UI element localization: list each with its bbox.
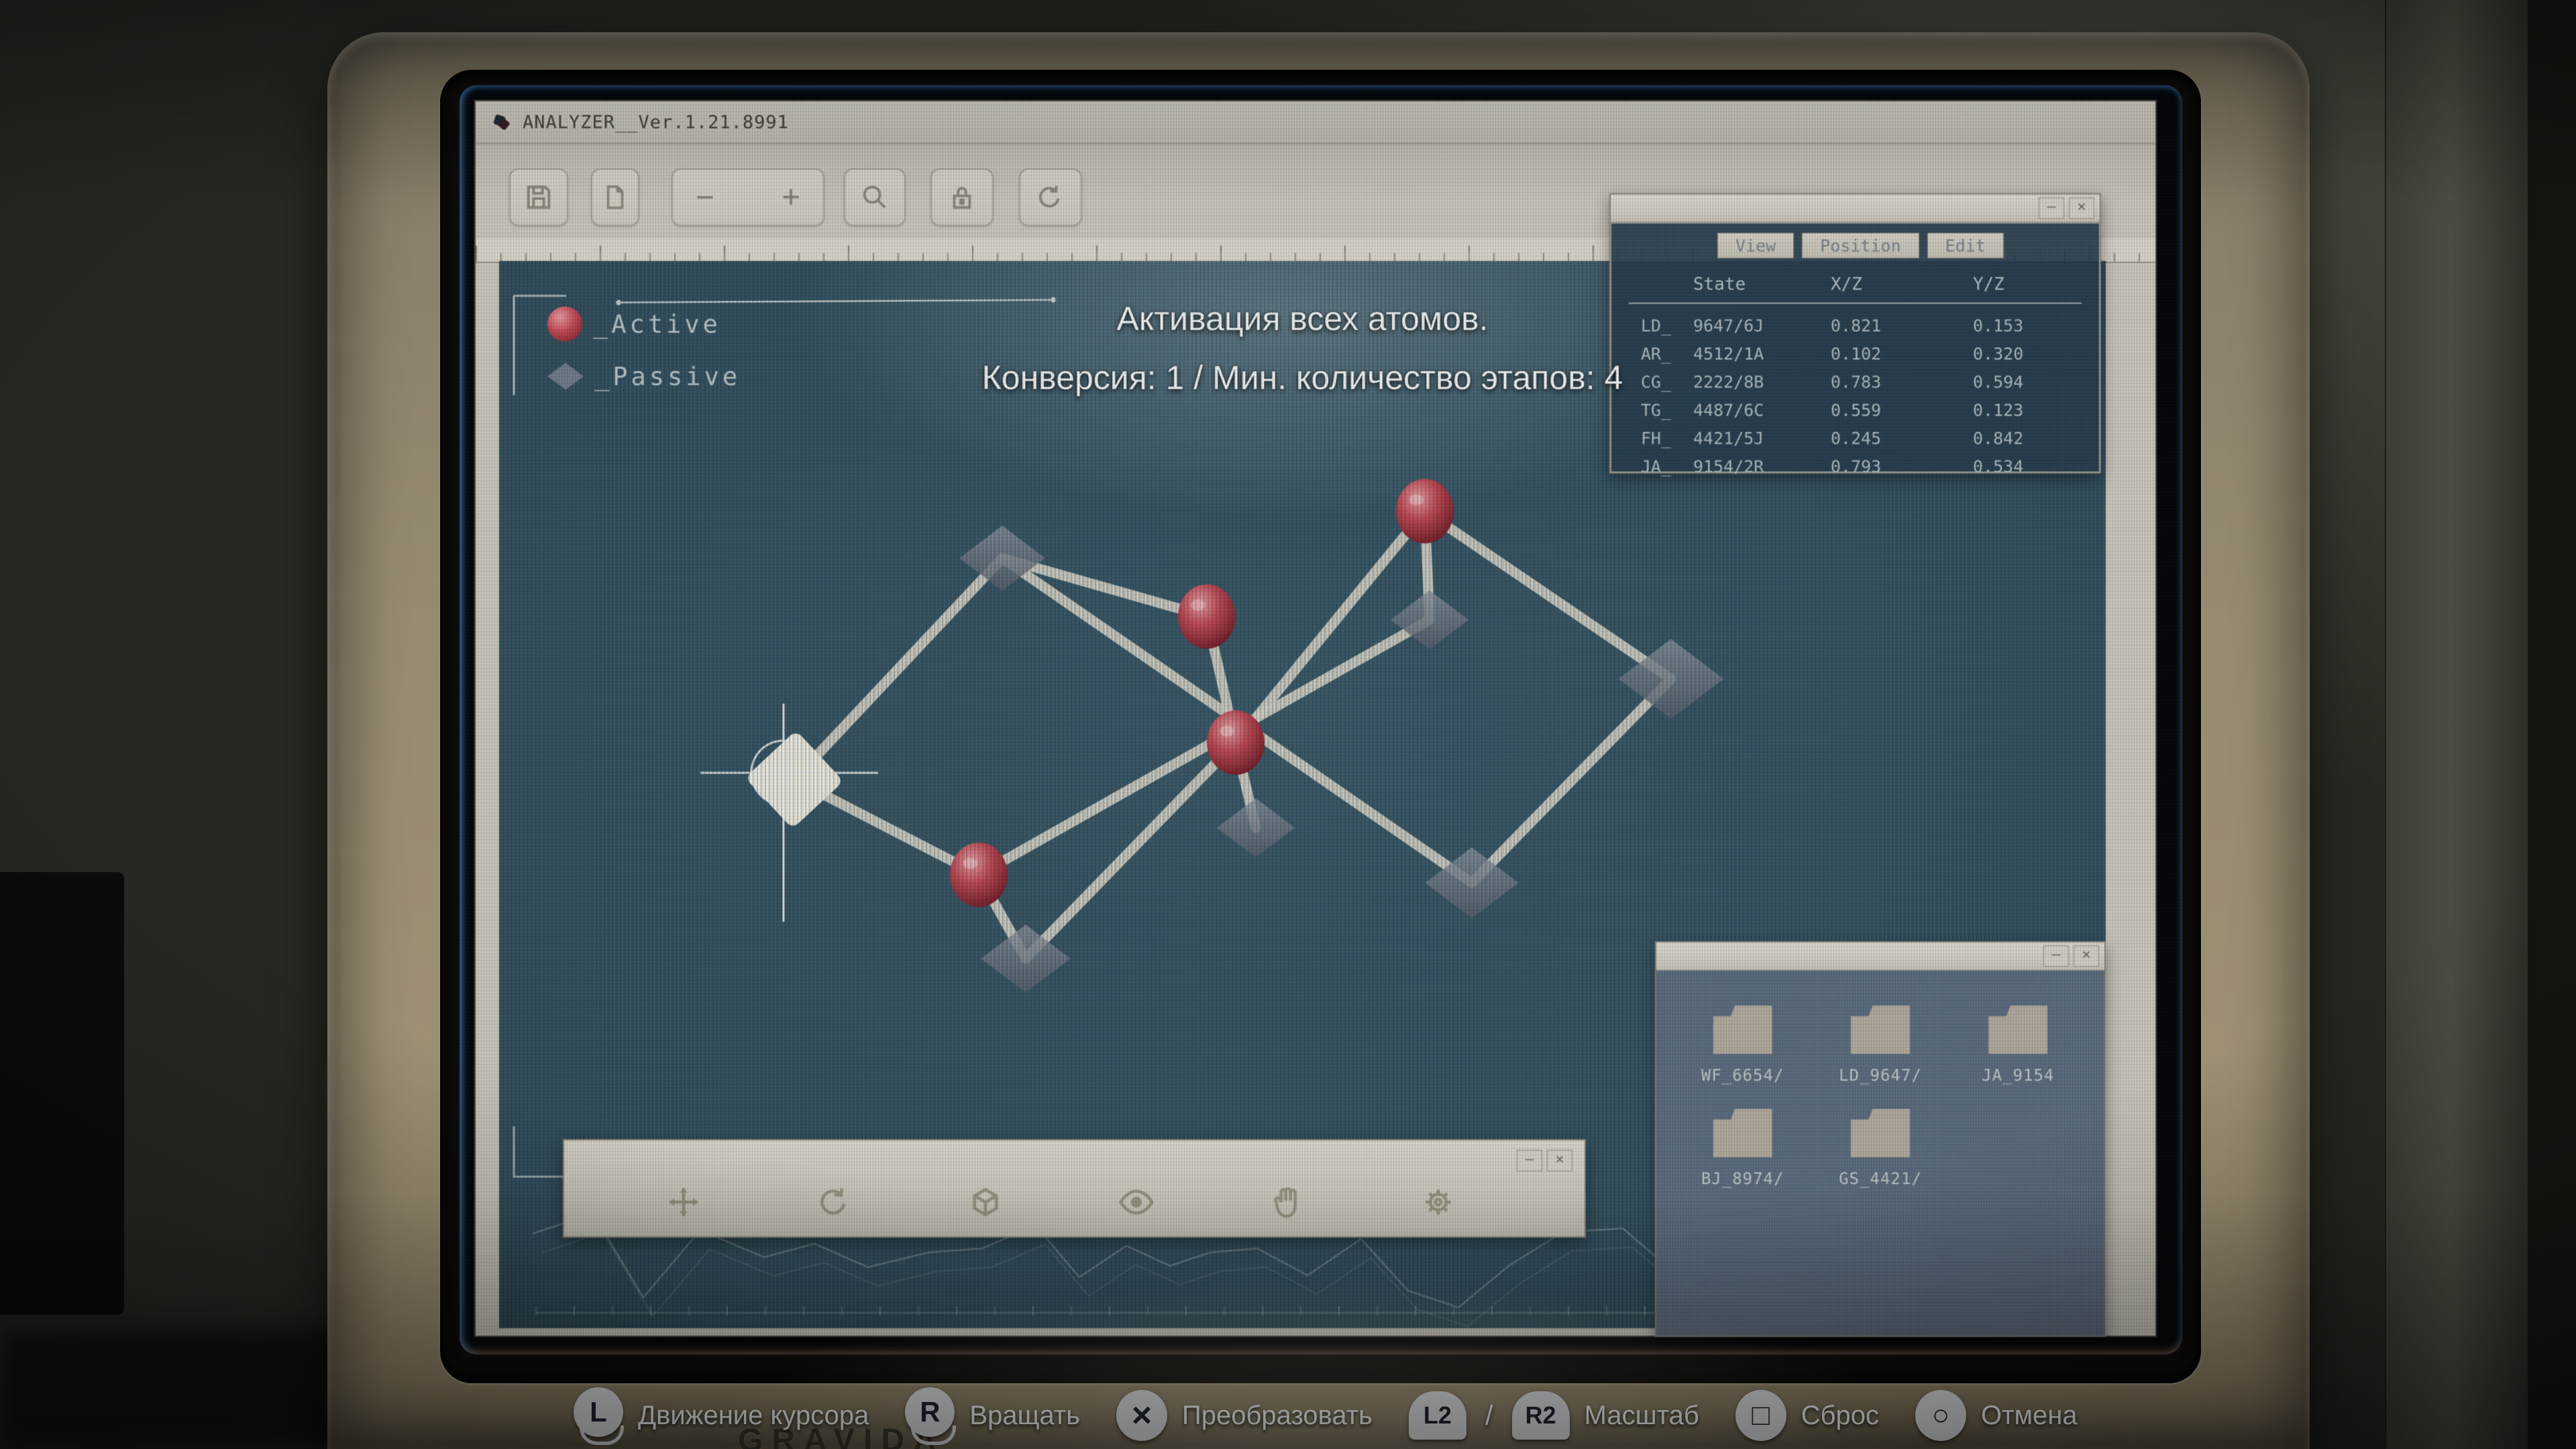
gear-tool-icon[interactable] — [1419, 1183, 1457, 1221]
minimize-button[interactable]: — — [2043, 945, 2069, 967]
wall-strip — [2385, 0, 2530, 1449]
folder-label: GS_4421/ — [1839, 1169, 1922, 1188]
folder-grid: WF_6654/LD_9647/JA_9154BJ_8974/GS_4421/ — [1656, 971, 2104, 1336]
separator: / — [1485, 1399, 1493, 1432]
app-icon — [493, 113, 511, 131]
tab-position[interactable]: Position — [1802, 233, 1919, 258]
minimize-button[interactable]: — — [1517, 1150, 1542, 1171]
folder-icon — [1713, 1006, 1772, 1054]
folder-item[interactable]: LD_9647/ — [1811, 1006, 1949, 1085]
atom-highlight — [1409, 494, 1424, 505]
tool-window: — × — [563, 1139, 1586, 1238]
l2-trigger-icon: L2 — [1409, 1391, 1466, 1440]
left-stick-icon: L — [574, 1387, 623, 1437]
close-button[interactable]: × — [2074, 945, 2099, 967]
rotate-tool-icon[interactable] — [816, 1183, 853, 1221]
control-label: Преобразовать — [1182, 1401, 1373, 1431]
eye-tool-icon[interactable] — [1118, 1183, 1155, 1221]
crt-monitor: ANALYZER__Ver.1.21.8991 − + — [327, 32, 2310, 1449]
window-title: ANALYZER__Ver.1.21.8991 — [523, 112, 789, 133]
folder-window-titlebar: — × — [1656, 943, 2104, 971]
zoom-out-icon[interactable]: − — [696, 179, 714, 216]
square-button-icon: □ — [1735, 1390, 1786, 1441]
control-hint: RВращать — [905, 1387, 1080, 1444]
circle-button-icon: ○ — [1915, 1390, 1966, 1441]
atom-highlight — [963, 858, 977, 869]
new-file-icon — [601, 182, 629, 213]
corner-bracket-bottom-left — [514, 1126, 563, 1177]
bond-rod — [1026, 743, 1236, 959]
control-label: Вращать — [969, 1401, 1080, 1431]
atom-node[interactable] — [1396, 479, 1454, 543]
bond-rod — [794, 558, 1002, 780]
tab-edit[interactable]: Edit — [1927, 233, 2004, 258]
tab-view[interactable]: View — [1717, 233, 1794, 258]
bond-rod — [979, 620, 1430, 875]
control-label: Масштаб — [1585, 1401, 1699, 1431]
speaker-box — [0, 872, 124, 1315]
control-hint: LДвижение курсора — [574, 1387, 869, 1444]
save-icon — [523, 182, 554, 213]
control-hint: L2/R2Масштаб — [1409, 1391, 1699, 1440]
search-button[interactable] — [844, 168, 906, 226]
atom-highlight — [1191, 600, 1205, 610]
control-label: Сброс — [1801, 1401, 1879, 1431]
zoom-in-icon[interactable]: + — [782, 179, 800, 216]
passive-pad-node[interactable] — [981, 924, 1070, 992]
lock-button[interactable] — [930, 168, 994, 226]
folder-icon — [1713, 1109, 1772, 1157]
screen-bezel-cavity: ANALYZER__Ver.1.21.8991 − + — [440, 70, 2201, 1383]
lock-icon — [947, 182, 977, 213]
objective-line2: Конверсия: 1 / Мин. количество этапов: 4 — [499, 348, 2106, 407]
control-hint: □Сброс — [1735, 1390, 1879, 1441]
close-button[interactable]: × — [1547, 1150, 1572, 1171]
reset-view-button[interactable] — [1019, 168, 1082, 226]
search-icon — [859, 182, 890, 213]
control-hint: ×Преобразовать — [1116, 1390, 1373, 1441]
data-tabs: View Position Edit — [1717, 233, 2004, 258]
atom-node[interactable] — [1207, 710, 1265, 775]
folder-item[interactable]: WF_6654/ — [1674, 1006, 1811, 1085]
atom-node[interactable] — [950, 843, 1008, 907]
control-label: Движение курсора — [638, 1401, 869, 1431]
undo-rotate-icon — [1035, 182, 1066, 213]
new-file-button[interactable] — [591, 168, 639, 226]
atom-node[interactable] — [1178, 584, 1236, 649]
window-titlebar: ANALYZER__Ver.1.21.8991 — [476, 101, 2155, 144]
folder-item[interactable]: GS_4421/ — [1811, 1109, 1949, 1188]
folder-icon — [1851, 1006, 1910, 1054]
photo-scene: ANALYZER__Ver.1.21.8991 − + — [0, 0, 2576, 1449]
table-row: FH_4421/5J0.2450.842 — [1611, 425, 2099, 453]
folder-label: WF_6654/ — [1701, 1066, 1784, 1085]
objective-message: Активация всех атомов. Конверсия: 1 / Ми… — [499, 289, 2106, 407]
folder-label: JA_9154 — [1982, 1066, 2054, 1085]
right-stick-icon: R — [905, 1387, 955, 1437]
save-button[interactable] — [509, 168, 568, 226]
close-button[interactable]: × — [2069, 197, 2094, 219]
crt-screen: ANALYZER__Ver.1.21.8991 − + — [460, 85, 2182, 1354]
folder-icon — [1988, 1006, 2047, 1054]
wall-edge — [2528, 0, 2576, 1449]
analyzer-window: ANALYZER__Ver.1.21.8991 − + — [474, 100, 2157, 1337]
cube-tool-icon[interactable] — [967, 1183, 1004, 1221]
data-window-titlebar: — × — [1611, 195, 2100, 223]
atom-highlight — [1220, 726, 1234, 737]
controls-bar: LДвижение курсораRВращать×ПреобразоватьL… — [574, 1383, 2078, 1448]
hand-tool-icon[interactable] — [1269, 1183, 1306, 1221]
folder-item[interactable]: BJ_8974/ — [1674, 1109, 1811, 1188]
bond-rod — [1472, 679, 1671, 883]
folder-label: LD_9647/ — [1839, 1066, 1922, 1085]
folder-window: — × WF_6654/LD_9647/JA_9154BJ_8974/GS_44… — [1655, 941, 2106, 1337]
folder-icon — [1851, 1109, 1910, 1157]
control-label: Отмена — [1981, 1401, 2078, 1431]
folder-label: BJ_8974/ — [1701, 1169, 1784, 1188]
r2-trigger-icon: R2 — [1512, 1391, 1570, 1440]
minimize-button[interactable]: — — [2039, 197, 2064, 219]
control-hint: ○Отмена — [1915, 1390, 2078, 1441]
table-row: JA_9154/2R0.7930.534 — [1611, 453, 2099, 481]
zoom-control[interactable]: − + — [672, 168, 824, 226]
folder-item[interactable]: JA_9154 — [1949, 1006, 2087, 1085]
objective-line1: Активация всех атомов. — [499, 289, 2106, 348]
cross-button-icon: × — [1116, 1390, 1167, 1441]
move-tool-icon[interactable] — [665, 1183, 702, 1221]
passive-pad-node[interactable] — [1217, 798, 1295, 857]
bond-rod — [1425, 511, 1671, 679]
